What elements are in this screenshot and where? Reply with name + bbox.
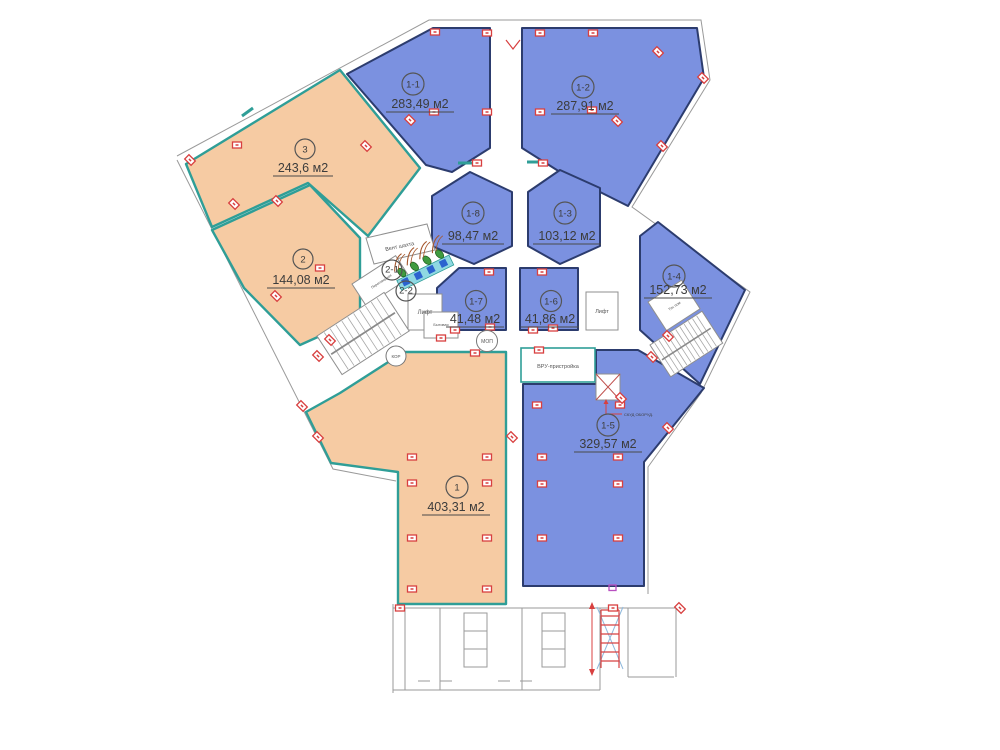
room-1-3-area: 103,12 м2 [538, 229, 595, 243]
skud-label: СКУД ОБОРУД. [624, 412, 653, 417]
stair-2-1-number: 2-1 [385, 265, 399, 276]
room-1-5-area: 329,57 м2 [579, 437, 636, 451]
room-1-4-number: 1-4 [667, 272, 681, 283]
vru-label: ВРУ-пристройка [537, 363, 580, 370]
lift-right-label: Лифт [595, 309, 609, 315]
utility-label: Бытовая [433, 323, 448, 327]
room-2-area: 144,08 м2 [272, 273, 329, 287]
room-1-7-number: 1-7 [469, 297, 483, 308]
floor-plan-canvas: Переговорная Тех пом [0, 0, 1000, 750]
stair-2-2-number: 2-2 [399, 286, 413, 297]
room-1-8-number: 1-8 [466, 209, 480, 220]
mop-label: МОП [481, 339, 493, 345]
room-1-6-area: 41,86 м2 [525, 312, 575, 326]
room-1-7-area: 41,48 м2 [450, 312, 500, 326]
room-1-8-area: 98,47 м2 [448, 229, 498, 243]
room-1-1-number: 1-1 [406, 80, 420, 91]
room-1-6-number: 1-6 [544, 297, 558, 308]
room-1-2-number: 1-2 [576, 83, 590, 94]
floor-plan: Переговорная Тех пом [0, 0, 1000, 750]
room-1-1-area: 283,49 м2 [391, 97, 448, 111]
kor-label: КОР [391, 354, 400, 359]
room-1-4-area: 152,73 м2 [649, 283, 706, 297]
lift-left-label: Лифт [418, 310, 433, 316]
room-1-5-number: 1-5 [601, 421, 615, 432]
room-3-number: 3 [302, 145, 307, 156]
room-1-2-area: 287,91 м2 [556, 99, 613, 113]
room-1-3-number: 1-3 [558, 209, 572, 220]
room-1-shape [306, 352, 506, 604]
room-1-number: 1 [454, 483, 459, 494]
door-swing-top [506, 40, 520, 49]
room-1-area: 403,31 м2 [427, 500, 484, 514]
room-2-number: 2 [300, 255, 305, 266]
room-3-area: 243,6 м2 [278, 161, 328, 175]
door-teal-1 [242, 108, 253, 116]
fire-ladder [589, 602, 623, 676]
